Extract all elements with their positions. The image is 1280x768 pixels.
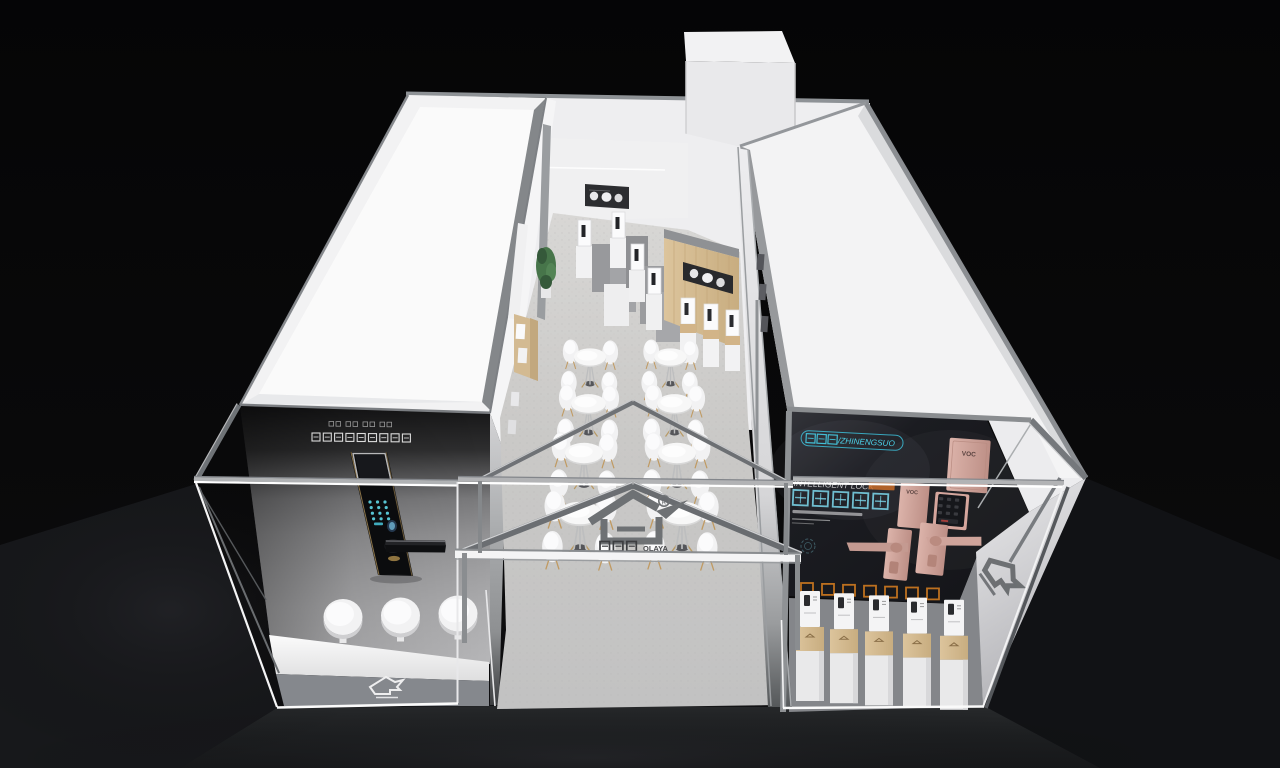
svg-text:R: R	[662, 500, 667, 507]
svg-text:VOC: VOC	[962, 451, 977, 459]
svg-text:VOC: VOC	[906, 489, 918, 496]
